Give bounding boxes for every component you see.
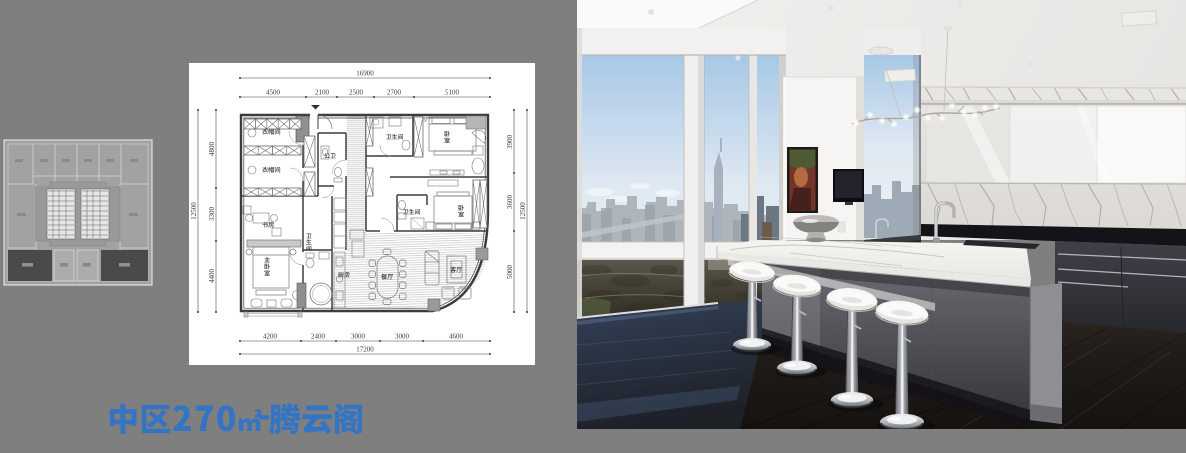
svg-text:3000: 3000	[395, 333, 410, 341]
svg-text:5000: 5000	[506, 265, 514, 280]
svg-text:3900: 3900	[506, 135, 514, 150]
svg-text:2400: 2400	[311, 333, 326, 341]
svg-text:2500: 2500	[349, 89, 364, 97]
svg-text:2100: 2100	[315, 89, 330, 97]
svg-text:4600: 4600	[449, 333, 464, 341]
svg-text:4500: 4500	[266, 89, 281, 97]
svg-text:4200: 4200	[263, 333, 278, 341]
svg-text:16900: 16900	[356, 70, 374, 78]
svg-text:5100: 5100	[445, 89, 460, 97]
svg-text:3600: 3600	[506, 195, 514, 210]
svg-text:4800: 4800	[208, 142, 216, 157]
svg-text:4400: 4400	[208, 269, 216, 284]
svg-text:12500: 12500	[519, 202, 527, 220]
svg-text:12500: 12500	[190, 202, 198, 220]
svg-text:2700: 2700	[387, 89, 402, 97]
svg-text:17200: 17200	[356, 346, 374, 354]
svg-text:3300: 3300	[208, 207, 216, 222]
svg-text:3000: 3000	[351, 333, 366, 341]
